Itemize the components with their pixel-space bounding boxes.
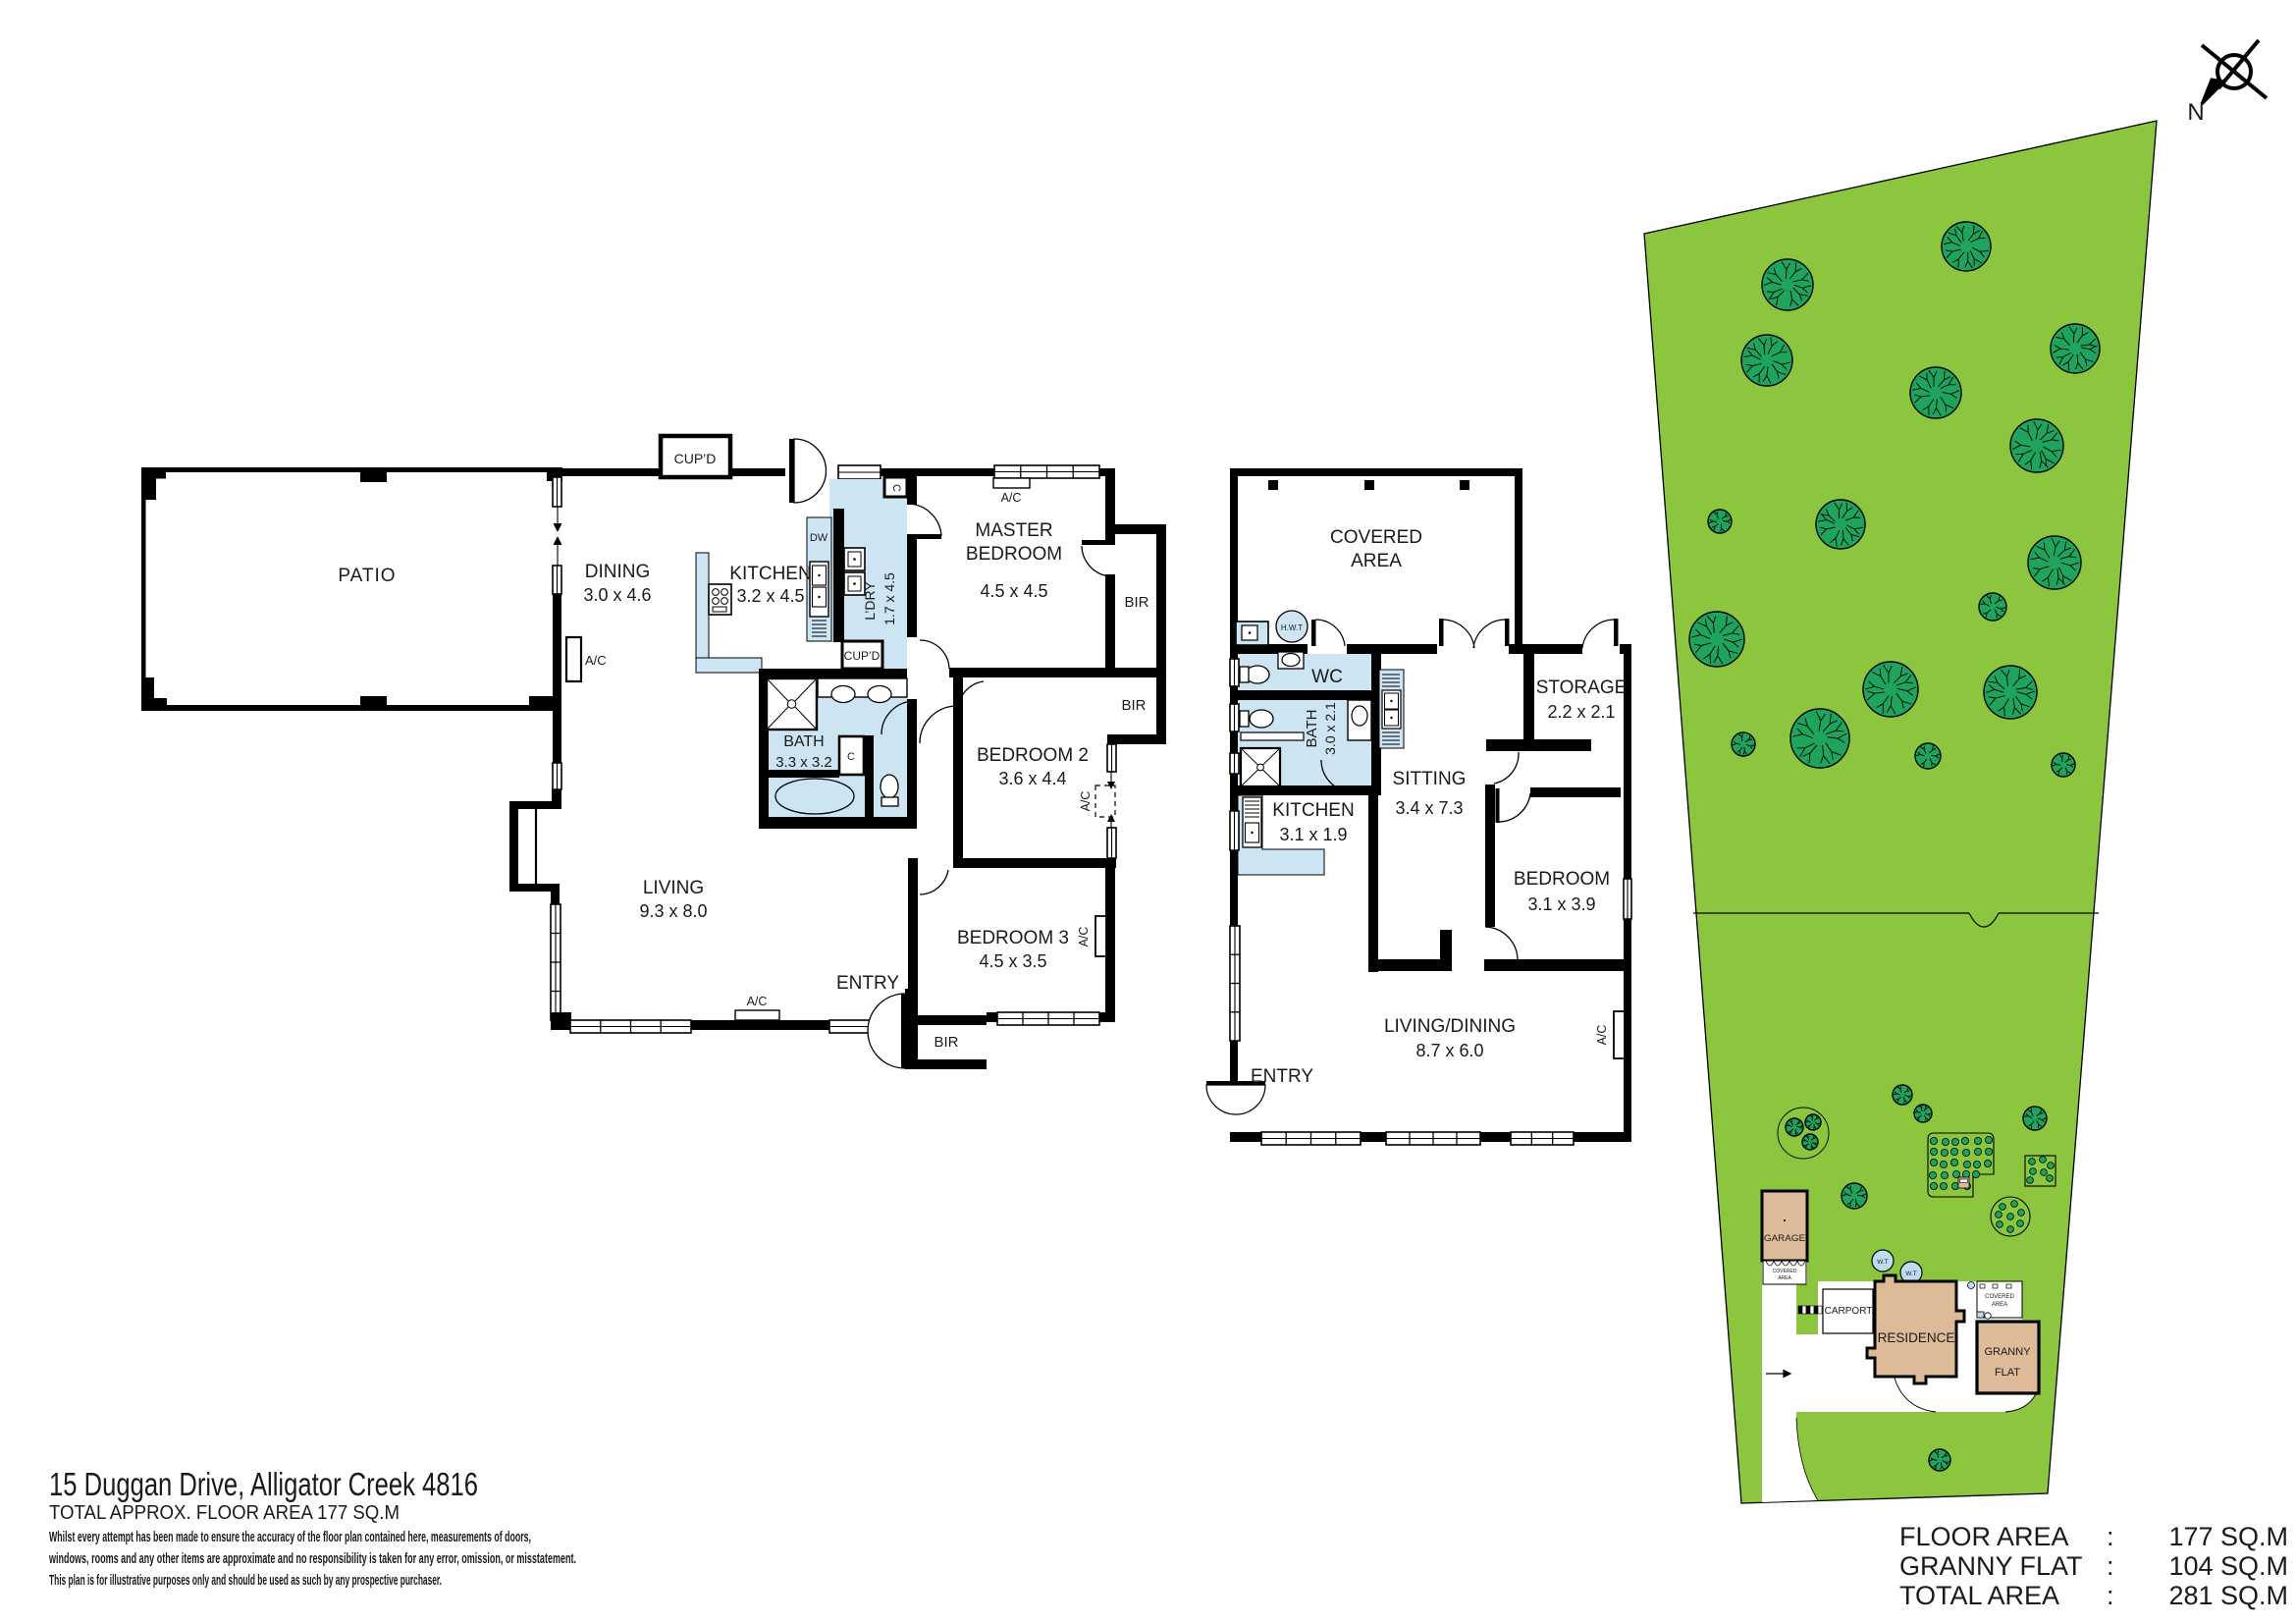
svg-text:W.T: W.T [1905, 1271, 1917, 1277]
svg-text:STORAGE: STORAGE [1536, 677, 1628, 698]
svg-text:3.1 x 3.9: 3.1 x 3.9 [1527, 894, 1595, 914]
svg-text:BEDROOM 2: BEDROOM 2 [977, 745, 1089, 766]
svg-text:104 SQ.M: 104 SQ.M [2168, 1551, 2288, 1581]
svg-text:3.1 x 1.9: 3.1 x 1.9 [1279, 825, 1347, 844]
svg-text:3.2 x 4.5: 3.2 x 4.5 [736, 586, 804, 606]
svg-text:9.3 x 8.0: 9.3 x 8.0 [639, 901, 707, 921]
svg-text:3.0 x 4.6: 3.0 x 4.6 [583, 585, 651, 605]
svg-text:AREA: AREA [1778, 1275, 1791, 1281]
svg-text:3.6 x 4.4: 3.6 x 4.4 [998, 769, 1066, 788]
svg-text:FLAT: FLAT [1995, 1367, 2020, 1379]
svg-text:1.7 x 4.5: 1.7 x 4.5 [881, 572, 897, 625]
svg-text:CARPORT: CARPORT [1825, 1306, 1873, 1317]
svg-text::: : [2107, 1522, 2114, 1551]
svg-text:BATH: BATH [1304, 710, 1320, 748]
svg-text:BEDROOM: BEDROOM [966, 544, 1062, 565]
svg-text:A/C: A/C [1079, 791, 1093, 812]
svg-text:15 Duggan Drive, Alligator Cre: 15 Duggan Drive, Alligator Creek 4816 [49, 1466, 478, 1502]
svg-text:BEDROOM: BEDROOM [1514, 869, 1610, 890]
svg-text:GARAGE: GARAGE [1764, 1233, 1805, 1244]
svg-text:This plan is for illustrative: This plan is for illustrative purposes o… [49, 1573, 442, 1589]
svg-text:177 SQ.M: 177 SQ.M [2168, 1522, 2288, 1551]
svg-text:AREA: AREA [1351, 551, 1402, 571]
svg-text:N: N [2187, 99, 2204, 126]
svg-text:3.3 x 3.2: 3.3 x 3.2 [775, 754, 832, 771]
svg-text:C: C [847, 751, 855, 763]
svg-text:BIR: BIR [934, 1034, 958, 1051]
svg-text:TOTAL AREA: TOTAL AREA [1899, 1581, 2059, 1610]
svg-text:DW: DW [810, 532, 828, 544]
svg-text:4.5 x 4.5: 4.5 x 4.5 [980, 581, 1047, 601]
svg-text:A/C: A/C [747, 995, 768, 1008]
svg-text:AREA: AREA [1992, 1302, 2007, 1308]
svg-text:RESIDENCE: RESIDENCE [1878, 1330, 1955, 1345]
svg-text:2.2 x 2.1: 2.2 x 2.1 [1547, 702, 1615, 722]
svg-text:FLOOR AREA: FLOOR AREA [1899, 1522, 2069, 1551]
svg-text:KITCHEN: KITCHEN [729, 564, 811, 584]
svg-text:ENTRY: ENTRY [1251, 1066, 1313, 1087]
svg-text:H.W.T: H.W.T [1281, 623, 1303, 632]
svg-text:A/C: A/C [1077, 927, 1091, 947]
svg-text:W.T: W.T [1877, 1259, 1889, 1266]
svg-text::: : [2107, 1581, 2114, 1610]
svg-text:TOTAL APPROX. FLOOR AREA 177 S: TOTAL APPROX. FLOOR AREA 177 SQ.M [49, 1501, 400, 1524]
svg-text:COVERED: COVERED [1330, 527, 1422, 548]
svg-text:GRANNY: GRANNY [1984, 1346, 2031, 1358]
svg-text::: : [2107, 1551, 2114, 1581]
svg-text:A/C: A/C [1001, 491, 1022, 505]
svg-text:Whilst every attempt has been: Whilst every attempt has been made to en… [49, 1530, 531, 1545]
svg-text:L’DRY: L’DRY [862, 581, 878, 621]
svg-text:CUP’D: CUP’D [674, 451, 717, 466]
svg-text:3.4 x 7.3: 3.4 x 7.3 [1395, 798, 1463, 818]
svg-text:8.7 x 6.0: 8.7 x 6.0 [1415, 1041, 1483, 1060]
svg-text:LIVING: LIVING [643, 878, 704, 898]
svg-text:WC: WC [1311, 667, 1343, 687]
svg-text:MASTER: MASTER [975, 520, 1052, 541]
svg-text:BIR: BIR [1121, 697, 1146, 714]
svg-text:A/C: A/C [585, 653, 607, 668]
svg-text:3.0 x 2.1: 3.0 x 2.1 [1322, 702, 1338, 755]
svg-text:281 SQ.M: 281 SQ.M [2168, 1581, 2288, 1610]
svg-text:COVERED: COVERED [1773, 1269, 1797, 1274]
svg-text:GRANNY FLAT: GRANNY FLAT [1899, 1551, 2083, 1581]
svg-text:4.5 x 3.5: 4.5 x 3.5 [979, 951, 1046, 971]
svg-text:LIVING/DINING: LIVING/DINING [1384, 1016, 1516, 1037]
svg-text:BIR: BIR [1124, 594, 1148, 611]
svg-text:CUP’D: CUP’D [844, 649, 881, 663]
svg-text:DINING: DINING [585, 562, 651, 582]
svg-text:BATH: BATH [783, 733, 824, 750]
svg-text:KITCHEN: KITCHEN [1272, 800, 1354, 821]
svg-text:BEDROOM 3: BEDROOM 3 [957, 928, 1069, 948]
svg-text:windows, rooms and any other i: windows, rooms and any other items are a… [48, 1551, 576, 1567]
svg-text:C: C [890, 484, 902, 492]
svg-text:SITTING: SITTING [1393, 769, 1467, 789]
svg-text:PATIO: PATIO [338, 566, 396, 586]
svg-text:COVERED: COVERED [1985, 1294, 2014, 1300]
svg-text:ENTRY: ENTRY [836, 973, 899, 994]
svg-text:A/C: A/C [1595, 1025, 1609, 1046]
